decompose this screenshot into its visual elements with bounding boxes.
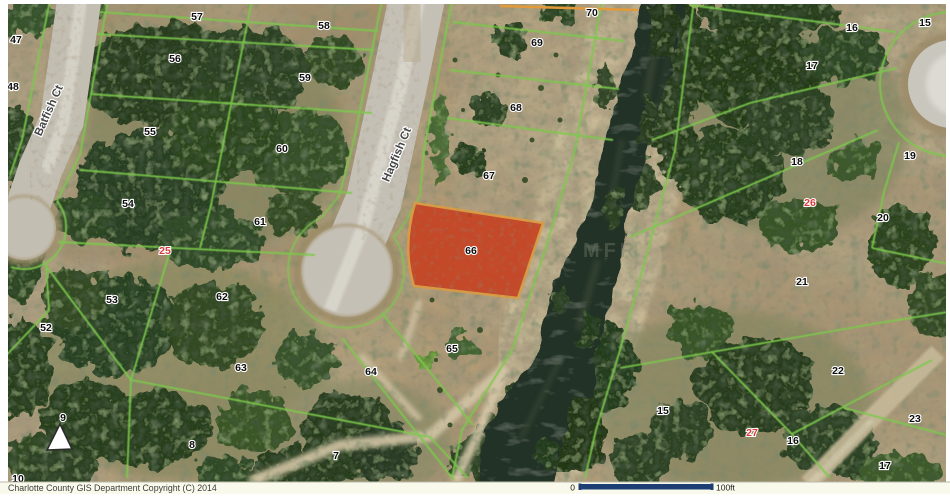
svg-text:63: 63 <box>235 362 247 374</box>
svg-text:17: 17 <box>879 460 891 472</box>
svg-text:55: 55 <box>144 126 156 138</box>
svg-text:MFR: MFR <box>583 240 638 262</box>
svg-text:57: 57 <box>191 11 203 23</box>
svg-text:60: 60 <box>276 143 288 155</box>
svg-text:16: 16 <box>787 435 799 447</box>
svg-text:7: 7 <box>333 450 339 462</box>
svg-text:54: 54 <box>122 198 134 210</box>
svg-text:48: 48 <box>7 81 19 93</box>
svg-text:Charlotte County GIS Departmen: Charlotte County GIS Department Copyrigh… <box>8 483 217 493</box>
svg-text:26: 26 <box>804 197 816 209</box>
svg-text:67: 67 <box>483 170 495 182</box>
svg-text:58: 58 <box>318 20 330 32</box>
svg-text:69: 69 <box>531 37 543 49</box>
svg-text:100ft: 100ft <box>716 483 736 493</box>
svg-text:65: 65 <box>446 343 458 355</box>
svg-text:18: 18 <box>791 156 803 168</box>
svg-text:20: 20 <box>877 212 889 224</box>
svg-text:23: 23 <box>909 413 921 425</box>
svg-text:62: 62 <box>216 291 228 303</box>
svg-text:68: 68 <box>510 102 522 114</box>
svg-text:47: 47 <box>10 34 22 46</box>
svg-text:21: 21 <box>796 276 808 288</box>
svg-text:17: 17 <box>806 60 818 72</box>
svg-text:22: 22 <box>832 365 844 377</box>
svg-text:27: 27 <box>746 427 758 439</box>
svg-text:52: 52 <box>40 322 52 334</box>
svg-text:53: 53 <box>106 294 118 306</box>
svg-text:59: 59 <box>299 72 311 84</box>
svg-text:61: 61 <box>254 216 266 228</box>
svg-text:70: 70 <box>586 7 598 19</box>
svg-text:16: 16 <box>846 22 858 34</box>
svg-text:66: 66 <box>465 245 477 257</box>
svg-text:15: 15 <box>919 17 931 29</box>
svg-text:19: 19 <box>904 150 916 162</box>
svg-text:64: 64 <box>365 366 377 378</box>
svg-text:8: 8 <box>189 439 195 451</box>
svg-text:56: 56 <box>169 53 181 65</box>
svg-text:25: 25 <box>159 245 171 257</box>
svg-text:9: 9 <box>60 412 66 424</box>
svg-text:15: 15 <box>657 405 669 417</box>
svg-text:0: 0 <box>570 483 575 493</box>
